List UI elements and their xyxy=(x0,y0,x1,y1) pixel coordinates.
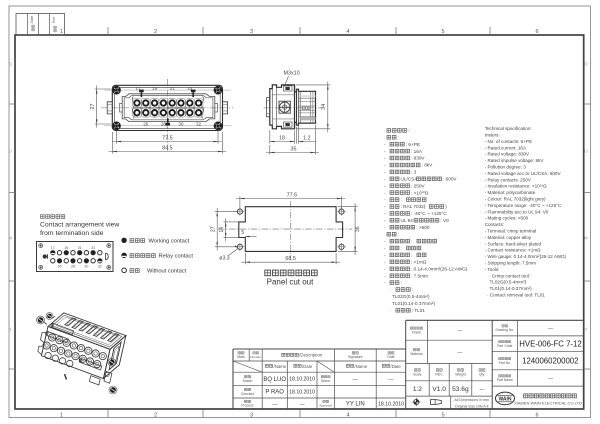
svg-text:: V0: : V0 xyxy=(440,218,449,223)
svg-text:: 16A: : 16A xyxy=(411,149,423,154)
svg-text:B: B xyxy=(8,236,13,239)
svg-text:Drawn: Drawn xyxy=(243,379,253,383)
svg-text:: 3: : 3 xyxy=(411,170,417,175)
svg-text:/Date: /Date xyxy=(391,364,402,369)
svg-text:77.5: 77.5 xyxy=(287,193,298,199)
svg-text:UL/CSA: UL/CSA xyxy=(401,176,419,181)
svg-text:77.5: 77.5 xyxy=(162,136,173,142)
svg-text:- Tools:: - Tools: xyxy=(485,267,500,272)
svg-text:: TL01: : TL01 xyxy=(412,308,426,313)
svg-text:3: 3 xyxy=(250,29,253,35)
svg-text:Technical specification:: Technical specification: xyxy=(485,126,532,131)
svg-text:/Date: /Date xyxy=(302,364,313,369)
svg-text:27: 27 xyxy=(90,104,96,110)
svg-text:- Stripping length: 7.5mm: - Stripping length: 7.5mm xyxy=(485,261,536,266)
svg-text:: RAL 7032(: : RAL 7032( xyxy=(401,204,426,209)
svg-text:Qty.: Qty. xyxy=(479,372,485,376)
svg-text:—: — xyxy=(300,402,305,408)
svg-text:- Surface: hard-silver plated: - Surface: hard-silver plated xyxy=(485,241,542,246)
svg-text:YY LIN: YY LIN xyxy=(346,402,365,408)
svg-text:TL02G(0.5-4mm²): TL02G(0.5-4mm²) xyxy=(490,280,527,285)
svg-text:P RAO: P RAO xyxy=(265,390,284,396)
svg-text:Material: Material xyxy=(410,352,422,356)
svg-text:21: 21 xyxy=(78,246,82,250)
svg-text:1240060200002: 1240060200002 xyxy=(522,357,578,366)
svg-text::: : xyxy=(398,135,399,140)
svg-text:1: 1 xyxy=(60,413,63,419)
svg-text:2: 2 xyxy=(154,413,157,419)
svg-text:18.10.2010: 18.10.2010 xyxy=(289,390,315,396)
svg-text:Without contact: Without contact xyxy=(147,268,187,274)
svg-text:18.10.2010: 18.10.2010 xyxy=(289,377,315,383)
svg-text:Contact arrangement view: Contact arrangement view xyxy=(40,222,119,229)
svg-text:: 7.5mm: : 7.5mm xyxy=(411,273,428,278)
svg-text:- No. of contacts: 6+PE: - No. of contacts: 6+PE xyxy=(485,139,532,144)
svg-text:- Relay contacts: 250V: - Relay contacts: 250V xyxy=(485,177,532,182)
svg-text:/Date: /Date xyxy=(30,15,34,23)
svg-text:19: 19 xyxy=(152,86,157,91)
svg-text:53.6g: 53.6g xyxy=(452,386,469,393)
svg-text:—: — xyxy=(457,350,462,356)
svg-text:1: 1 xyxy=(60,29,63,35)
svg-text:5: 5 xyxy=(441,29,444,35)
svg-text:—: — xyxy=(548,376,553,382)
svg-text:: 600V: : 600V xyxy=(443,176,457,181)
svg-text:5: 5 xyxy=(441,413,444,419)
svg-text:Finish: Finish xyxy=(412,330,421,334)
svg-text:6: 6 xyxy=(535,413,538,419)
svg-text:/Name: /Name xyxy=(355,364,368,369)
svg-text:M3x10: M3x10 xyxy=(284,71,300,77)
svg-text:1.2: 1.2 xyxy=(303,136,311,142)
svg-text:19: 19 xyxy=(64,246,68,250)
svg-text:TL02G(0.5-4mm²): TL02G(0.5-4mm²) xyxy=(392,294,430,299)
svg-text:Original Size DIN A 4: Original Size DIN A 4 xyxy=(455,404,489,408)
svg-text::: : xyxy=(401,197,402,202)
svg-text:· Contact removal tool: TL01: · Contact removal tool: TL01 xyxy=(487,293,545,298)
svg-text::: : xyxy=(398,232,399,237)
svg-text:30: 30 xyxy=(84,265,88,269)
svg-text:—: — xyxy=(548,326,553,332)
svg-text:68.5: 68.5 xyxy=(285,256,296,262)
svg-text:- Rated voltage acc.to UL/CSA: - Rated voltage acc.to UL/CSA: 600V xyxy=(485,171,562,176)
svg-text:B: B xyxy=(583,236,588,239)
svg-text::: : xyxy=(401,280,402,285)
svg-text:- Wire gauge: 0.14-4.0mm²(26-: - Wire gauge: 0.14-4.0mm²(26-12 AWG) xyxy=(485,254,567,259)
svg-text:V1.0: V1.0 xyxy=(432,386,446,393)
svg-text:BQ LUO: BQ LUO xyxy=(263,377,286,383)
svg-text:Panel cut out: Panel cut out xyxy=(267,278,314,287)
svg-text:Scale: Scale xyxy=(413,372,422,376)
svg-text:: >1010Ω: : >1010Ω xyxy=(411,190,429,195)
svg-text:23: 23 xyxy=(91,246,95,250)
svg-text:36: 36 xyxy=(355,226,361,232)
svg-text:26: 26 xyxy=(58,265,62,269)
svg-text:TL01(0.14-0.37mm²): TL01(0.14-0.37mm²) xyxy=(490,286,533,291)
svg-text:: 6+PE: : 6+PE xyxy=(406,142,420,147)
svg-text:6: 6 xyxy=(535,29,538,35)
svg-text:35: 35 xyxy=(291,147,297,153)
svg-text:Weight: Weight xyxy=(455,372,466,376)
svg-text:Working contact: Working contact xyxy=(149,238,190,244)
svg-text:Rev: Rev xyxy=(52,17,56,23)
svg-text:27: 27 xyxy=(211,226,217,232)
svg-text:Checked: Checked xyxy=(241,392,254,396)
svg-text:14: 14 xyxy=(219,227,225,233)
svg-text:32: 32 xyxy=(98,265,102,269)
svg-text:Part No.: Part No. xyxy=(499,361,511,365)
svg-text:All Dimensions in mm: All Dimensions in mm xyxy=(454,398,489,402)
svg-text::: : xyxy=(411,239,412,244)
svg-text:- Colour: RAL 7032(light grey: - Colour: RAL 7032(light grey) xyxy=(485,197,546,202)
svg-text:Drawing No.: Drawing No. xyxy=(495,328,514,332)
svg-text:84.5: 84.5 xyxy=(162,146,173,152)
svg-text:: -40°C ~ +125°C: : -40°C ~ +125°C xyxy=(411,211,447,216)
svg-text:18: 18 xyxy=(279,136,285,142)
svg-text::: : xyxy=(411,253,412,258)
svg-text:XIAMEN WAIN ELECTRICAL CO.LTD: XIAMEN WAIN ELECTRICAL CO.LTD xyxy=(514,400,582,405)
svg-text:- Pollution degree: 3: - Pollution degree: 3 xyxy=(485,165,527,170)
svg-text:: <1mΩ: : <1mΩ xyxy=(411,260,427,265)
svg-text:- Terminal: crimp terminal: - Terminal: crimp terminal xyxy=(485,229,536,234)
svg-text:Insters:: Insters: xyxy=(485,133,500,138)
svg-text:4: 4 xyxy=(346,413,349,419)
svg-text:: 250V: : 250V xyxy=(411,183,425,188)
svg-text:·: · xyxy=(390,308,392,313)
svg-text:: 0.14-4.0mm²(26-12 AWG): : 0.14-4.0mm²(26-12 AWG) xyxy=(411,266,468,271)
svg-text:3: 3 xyxy=(250,413,253,419)
svg-text:REV.: REV. xyxy=(435,372,443,376)
svg-text::: : xyxy=(401,246,402,251)
svg-text:1:2: 1:2 xyxy=(413,386,422,393)
svg-text:—: — xyxy=(353,377,358,383)
svg-text:28: 28 xyxy=(71,265,75,269)
svg-text:from termination side: from termination side xyxy=(40,230,104,237)
svg-text:: 830V: : 830V xyxy=(411,156,425,161)
svg-text:- Mating cycles: >500: - Mating cycles: >500 xyxy=(485,216,529,221)
svg-text:HVE-006-FC 7-12: HVE-006-FC 7-12 xyxy=(519,340,581,349)
svg-text:—: — xyxy=(457,328,462,334)
svg-text:ø3.3: ø3.3 xyxy=(219,255,229,261)
svg-text:—: — xyxy=(272,402,277,408)
svg-text:5: 5 xyxy=(241,230,244,236)
svg-text:30: 30 xyxy=(179,121,184,126)
svg-text:Part Code: Part Code xyxy=(497,344,512,348)
svg-text:·: · xyxy=(390,287,392,292)
svg-text:/Description: /Description xyxy=(299,353,323,358)
svg-text:TL01(0.14-0.37mm²): TL01(0.14-0.37mm²) xyxy=(392,301,435,306)
svg-text:21: 21 xyxy=(170,86,175,91)
svg-text::: : xyxy=(408,128,409,133)
svg-text:- Rated current: 16A: - Rated current: 16A xyxy=(485,145,527,150)
svg-text:- Material: polycarbonate: - Material: polycarbonate xyxy=(485,190,536,195)
svg-text:2: 2 xyxy=(154,29,157,35)
svg-text:Contacts:: Contacts: xyxy=(485,222,504,227)
svg-text:Signature: Signature xyxy=(348,355,363,359)
svg-text:17: 17 xyxy=(51,246,55,250)
svg-text:UL 94: UL 94 xyxy=(401,218,414,223)
svg-text:18.10.2010: 18.10.2010 xyxy=(378,401,404,407)
svg-text::: : xyxy=(412,287,413,292)
svg-text:- Contact resistance: <1mΩ: - Contact resistance: <1mΩ xyxy=(485,248,541,253)
svg-text:—: — xyxy=(480,387,485,393)
svg-text:- Temperature range: -40°C ~: - Temperature range: -40°C ~ +125°C xyxy=(485,203,562,208)
svg-text:26: 26 xyxy=(143,121,148,126)
svg-text:Process: Process xyxy=(241,404,254,408)
svg-text:Number: Number xyxy=(250,355,261,359)
svg-text:: 8kV: : 8kV xyxy=(422,163,434,168)
svg-text:Approved: Approved xyxy=(319,404,332,408)
svg-text:Part Name: Part Name xyxy=(497,378,513,382)
svg-text:Stand.: Stand. xyxy=(321,379,331,383)
svg-text:- Rated voltage: 830V: - Rated voltage: 830V xyxy=(485,152,530,157)
svg-text:Mark: Mark xyxy=(237,355,245,359)
svg-text:4: 4 xyxy=(346,29,349,35)
svg-text:- Flammability acc.to UL 94:: - Flammability acc.to UL 94: V0 xyxy=(485,209,549,214)
svg-text:· Crimp contact tool:: · Crimp contact tool: xyxy=(489,273,530,278)
svg-text:—: — xyxy=(389,377,394,383)
svg-text:: >500: : >500 xyxy=(416,225,430,230)
svg-text:- Insulation resistance: >101: - Insulation resistance: >1010Ω xyxy=(485,183,547,188)
svg-text:Date: Date xyxy=(387,355,394,359)
svg-text:- Rated impulse voltage: 8kV: - Rated impulse voltage: 8kV xyxy=(485,158,545,163)
svg-text:34: 34 xyxy=(321,104,327,110)
svg-text:Relay contact: Relay contact xyxy=(159,253,194,259)
svg-text:/Name: /Name xyxy=(274,364,287,369)
svg-text:32: 32 xyxy=(196,121,201,126)
svg-text:- Material: copper alloy: - Material: copper alloy xyxy=(485,235,532,240)
